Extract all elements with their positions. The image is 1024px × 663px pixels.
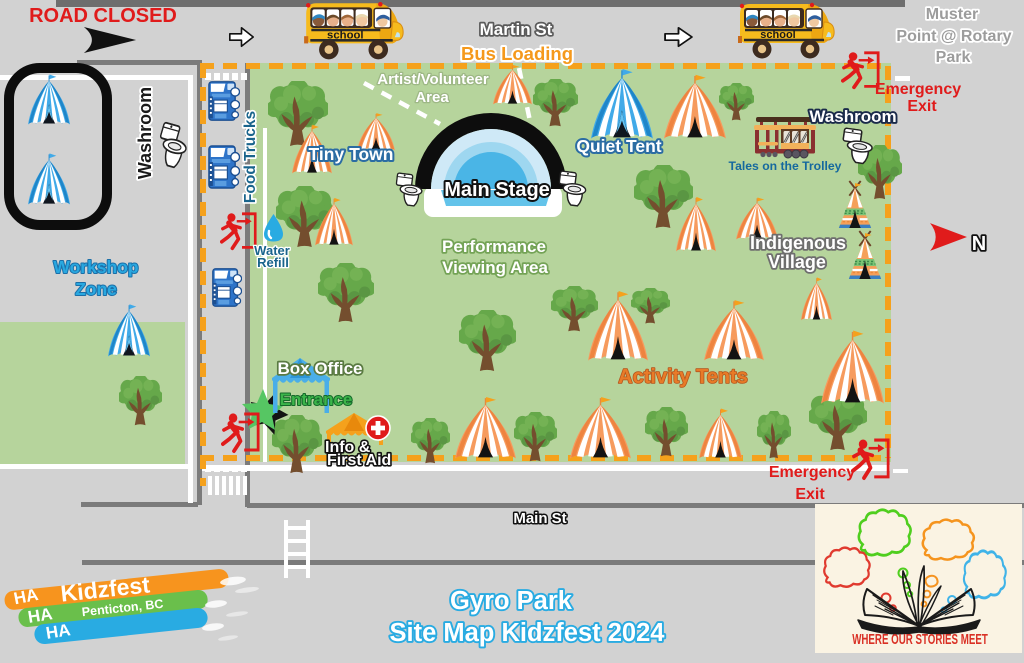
- svg-text:Entrance: Entrance: [280, 390, 353, 409]
- svg-text:Workshop: Workshop: [53, 257, 138, 277]
- svg-text:Village: Village: [768, 252, 826, 272]
- svg-text:Washroom: Washroom: [135, 87, 155, 179]
- svg-text:First Aid: First Aid: [327, 452, 391, 469]
- svg-text:Park: Park: [936, 49, 971, 66]
- svg-text:Emergency: Emergency: [769, 464, 855, 481]
- svg-text:Muster: Muster: [926, 6, 978, 23]
- svg-text:school: school: [760, 29, 795, 41]
- svg-text:Main St: Main St: [513, 510, 566, 527]
- svg-text:WHERE OUR STORIES MEET: WHERE OUR STORIES MEET: [852, 631, 988, 647]
- svg-text:Exit: Exit: [907, 98, 937, 115]
- svg-text:Bus Loading: Bus Loading: [461, 43, 573, 64]
- svg-text:Food Trucks: Food Trucks: [242, 111, 259, 203]
- svg-text:Viewing Area: Viewing Area: [442, 258, 548, 277]
- svg-text:Indigenous: Indigenous: [750, 233, 846, 253]
- svg-text:Performance: Performance: [442, 237, 546, 256]
- svg-text:Box Office: Box Office: [277, 359, 362, 378]
- svg-text:N: N: [972, 233, 986, 255]
- svg-text:Emergency: Emergency: [875, 81, 961, 98]
- svg-text:Point @ Rotary: Point @ Rotary: [896, 28, 1011, 45]
- svg-text:Tiny Town: Tiny Town: [309, 144, 394, 164]
- svg-text:Martin St: Martin St: [480, 20, 553, 39]
- svg-text:Washroom: Washroom: [809, 107, 896, 126]
- svg-text:Main Stage: Main Stage: [444, 179, 550, 201]
- svg-text:Zone: Zone: [75, 279, 117, 299]
- svg-text:Gyro Park: Gyro Park: [450, 587, 573, 615]
- svg-text:Refill: Refill: [257, 255, 289, 270]
- svg-text:Quiet Tent: Quiet Tent: [576, 136, 661, 156]
- svg-text:ROAD CLOSED: ROAD CLOSED: [29, 5, 177, 27]
- svg-text:Exit: Exit: [795, 486, 825, 503]
- svg-text:Artist/Volunteer: Artist/Volunteer: [377, 71, 489, 88]
- svg-text:Tales on the Trolley: Tales on the Trolley: [729, 159, 842, 173]
- svg-text:school: school: [327, 29, 364, 41]
- svg-text:Area: Area: [415, 89, 449, 106]
- svg-text:Site Map Kidzfest 2024: Site Map Kidzfest 2024: [390, 619, 666, 647]
- svg-text:HA: HA: [45, 620, 72, 643]
- svg-text:Activity Tents: Activity Tents: [618, 366, 748, 388]
